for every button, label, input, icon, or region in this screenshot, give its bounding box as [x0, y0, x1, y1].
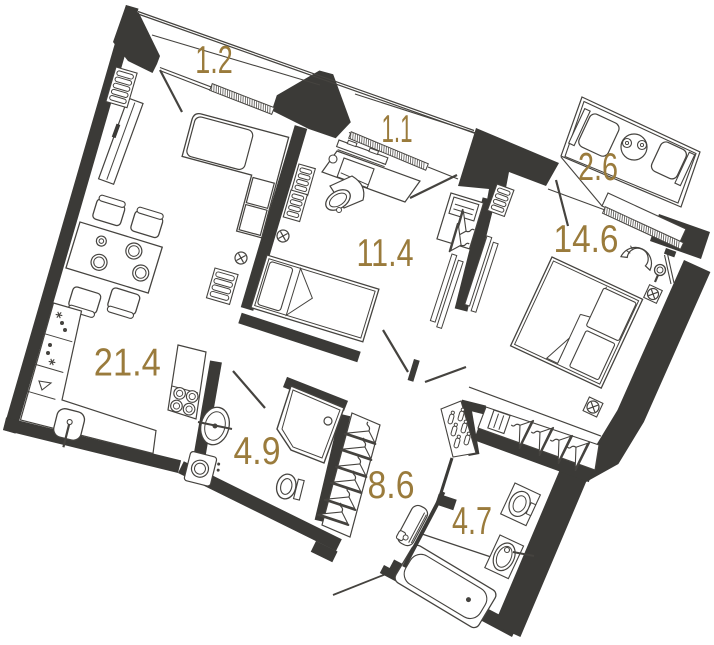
- svg-text:4.9: 4.9: [234, 430, 281, 473]
- svg-text:2.6: 2.6: [578, 146, 618, 189]
- svg-text:11.4: 11.4: [357, 232, 414, 275]
- svg-text:4.7: 4.7: [452, 500, 492, 543]
- svg-text:14.6: 14.6: [554, 218, 619, 261]
- svg-text:1.1: 1.1: [382, 108, 413, 151]
- svg-text:1.2: 1.2: [195, 39, 233, 82]
- svg-text:21.4: 21.4: [94, 342, 161, 385]
- svg-text:8.6: 8.6: [368, 464, 415, 507]
